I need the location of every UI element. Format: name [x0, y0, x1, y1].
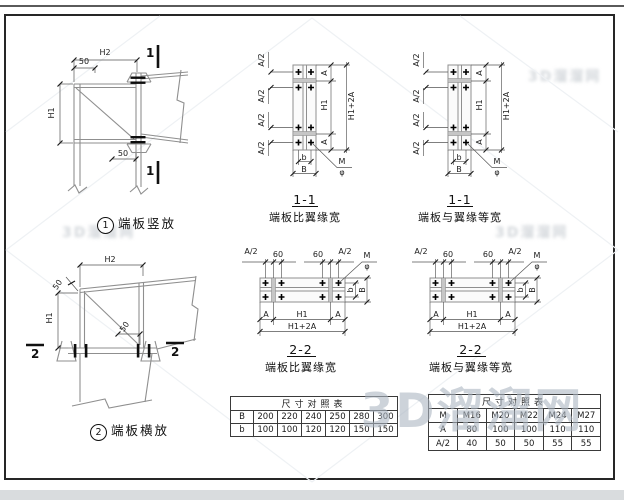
section-mark-1-bottom: 1: [146, 165, 154, 177]
table-title: 尺寸对照表: [231, 397, 398, 411]
table-cell: 40: [458, 437, 487, 451]
table-cell: 55: [572, 437, 601, 451]
table-cell: 100: [254, 424, 278, 437]
table-cell: M27: [572, 409, 601, 423]
table-cell: 100: [486, 423, 515, 437]
table-cell: 50: [515, 437, 544, 451]
dim-label-60: 60: [483, 251, 493, 259]
table-cell: 240: [302, 411, 326, 424]
table-cell: 120: [326, 424, 350, 437]
dim-label-h1: H1: [46, 312, 54, 323]
dim-label-50: 50: [118, 150, 128, 158]
bolt-size-table: 尺寸对照表 M M16 M20 M22 M24 M27 A 80 100 100…: [428, 394, 601, 451]
table-title: 尺寸对照表: [429, 395, 601, 409]
dim-label-50: 50: [79, 58, 89, 66]
dim-label-b: b: [347, 287, 355, 292]
dim-label-a-half: A/2: [258, 53, 266, 66]
dim-label-h1: H1: [466, 311, 477, 319]
table-cell: M16: [458, 409, 487, 423]
dim-label-h2: H2: [99, 49, 110, 57]
dim-label-a: A: [433, 311, 438, 319]
dim-label-60: 60: [313, 251, 323, 259]
section-title: 1-1: [448, 194, 471, 207]
section-mark-2-left: 2: [31, 348, 39, 360]
dim-label-B: B: [529, 287, 537, 293]
section-mark-1-top: 1: [146, 47, 154, 59]
dim-label-h1-2a: H1+2A: [348, 92, 356, 120]
dim-label-h1-2a: H1+2A: [503, 92, 511, 120]
section-title: 2-2: [459, 344, 482, 357]
table-cell: M24: [543, 409, 572, 423]
table-header-row: 尺寸对照表: [231, 397, 398, 411]
dim-label-a: A: [335, 311, 340, 319]
table-cell: 110: [572, 423, 601, 437]
dim-label-60: 60: [443, 251, 453, 259]
section-subtitle: 端板与翼缘等宽: [429, 362, 513, 373]
table-cell: M20: [486, 409, 515, 423]
row-label: b: [231, 424, 254, 437]
dim-label-60: 60: [273, 251, 283, 259]
dim-label-a-half: A/2: [338, 248, 351, 256]
bolt-label-m: M: [364, 252, 371, 260]
dim-label-h1-2a: H1+2A: [458, 323, 486, 331]
dim-label-a: A: [263, 311, 268, 319]
drawing-sheet: 3D溜溜网 3D溜溜网 3D溜溜网: [0, 0, 624, 500]
detail-number-badge: 2: [90, 424, 107, 441]
dim-label-a-half: A/2: [413, 113, 421, 126]
section-title: 2-2: [289, 344, 312, 357]
bolt-label-phi: φ: [494, 169, 499, 177]
row-label: M: [429, 409, 458, 423]
dim-label-a-half: A/2: [258, 113, 266, 126]
dim-label-a: A: [505, 311, 510, 319]
table-row: B 200 220 240 250 280 300: [231, 411, 398, 424]
bolt-label-m: M: [494, 158, 501, 166]
dim-label-a: A: [321, 70, 329, 75]
table-cell: 200: [254, 411, 278, 424]
dim-label-a-half: A/2: [413, 53, 421, 66]
table-cell: 250: [326, 411, 350, 424]
table-cell: 50: [486, 437, 515, 451]
table-header-row: 尺寸对照表: [429, 395, 601, 409]
dim-label-a-half: A/2: [258, 141, 266, 154]
table-row: M M16 M20 M22 M24 M27: [429, 409, 601, 423]
table-cell: 100: [515, 423, 544, 437]
dim-label-b: b: [517, 287, 525, 292]
dim-label-B: B: [456, 166, 462, 174]
dim-label-a-half: A/2: [413, 141, 421, 154]
bolt-label-m: M: [534, 252, 541, 260]
dim-label-a-half: A/2: [508, 248, 521, 256]
section-subtitle: 端板与翼缘等宽: [418, 212, 502, 223]
row-label: A: [429, 423, 458, 437]
dim-label-h1: H1: [476, 99, 484, 110]
dim-label-B: B: [359, 287, 367, 293]
detail-caption: 端板横放: [111, 425, 169, 438]
table-cell: 220: [278, 411, 302, 424]
dim-label-B: B: [301, 166, 307, 174]
detail-vertical-art: [58, 45, 189, 194]
table-cell: 110: [543, 423, 572, 437]
table-row: b 100 100 120 120 150 150: [231, 424, 398, 437]
row-label: A/2: [429, 437, 458, 451]
table-row: A 80 100 100 110 110: [429, 423, 601, 437]
dim-label-h1: H1: [48, 107, 56, 118]
detail-caption: 端板竖放: [118, 218, 176, 231]
table-cell: M22: [515, 409, 544, 423]
table-row: A/2 40 50 50 55 55: [429, 437, 601, 451]
dim-label-a-half: A/2: [414, 248, 427, 256]
table-cell: 80: [458, 423, 487, 437]
size-comparison-table: 尺寸对照表 B 200 220 240 250 280 300 b 100 10…: [230, 396, 398, 437]
dim-label-a-half: A/2: [258, 89, 266, 102]
dim-label-h2: H2: [104, 256, 115, 264]
section-1-1-art: [269, 52, 353, 207]
dim-label-a: A: [321, 139, 329, 144]
table-cell: 120: [302, 424, 326, 437]
bolt-label-phi: φ: [364, 263, 369, 271]
dim-label-a: A: [476, 139, 484, 144]
table-cell: 150: [350, 424, 374, 437]
dim-label-h1-2a: H1+2A: [288, 323, 316, 331]
table-cell: 55: [543, 437, 572, 451]
section-subtitle: 端板比翼缘宽: [265, 362, 337, 373]
row-label: B: [231, 411, 254, 424]
bolt-label-m: M: [339, 158, 346, 166]
dim-label-a-half: A/2: [244, 248, 257, 256]
table-cell: 150: [374, 424, 398, 437]
dim-label-h1: H1: [296, 311, 307, 319]
bolt-label-phi: φ: [534, 263, 539, 271]
dim-label-a-half: A/2: [413, 89, 421, 102]
section-title: 1-1: [293, 194, 316, 207]
table-cell: 300: [374, 411, 398, 424]
section-mark-2-right: 2: [171, 346, 179, 358]
dim-label-a: A: [476, 70, 484, 75]
detail-number-badge: 1: [97, 217, 114, 234]
dim-label-b: b: [456, 154, 461, 162]
dim-label-b: b: [301, 154, 306, 162]
section-subtitle: 端板比翼缘宽: [269, 212, 341, 223]
bolt-label-phi: φ: [339, 169, 344, 177]
table-cell: 280: [350, 411, 374, 424]
dim-label-h1: H1: [321, 99, 329, 110]
table-cell: 100: [278, 424, 302, 437]
